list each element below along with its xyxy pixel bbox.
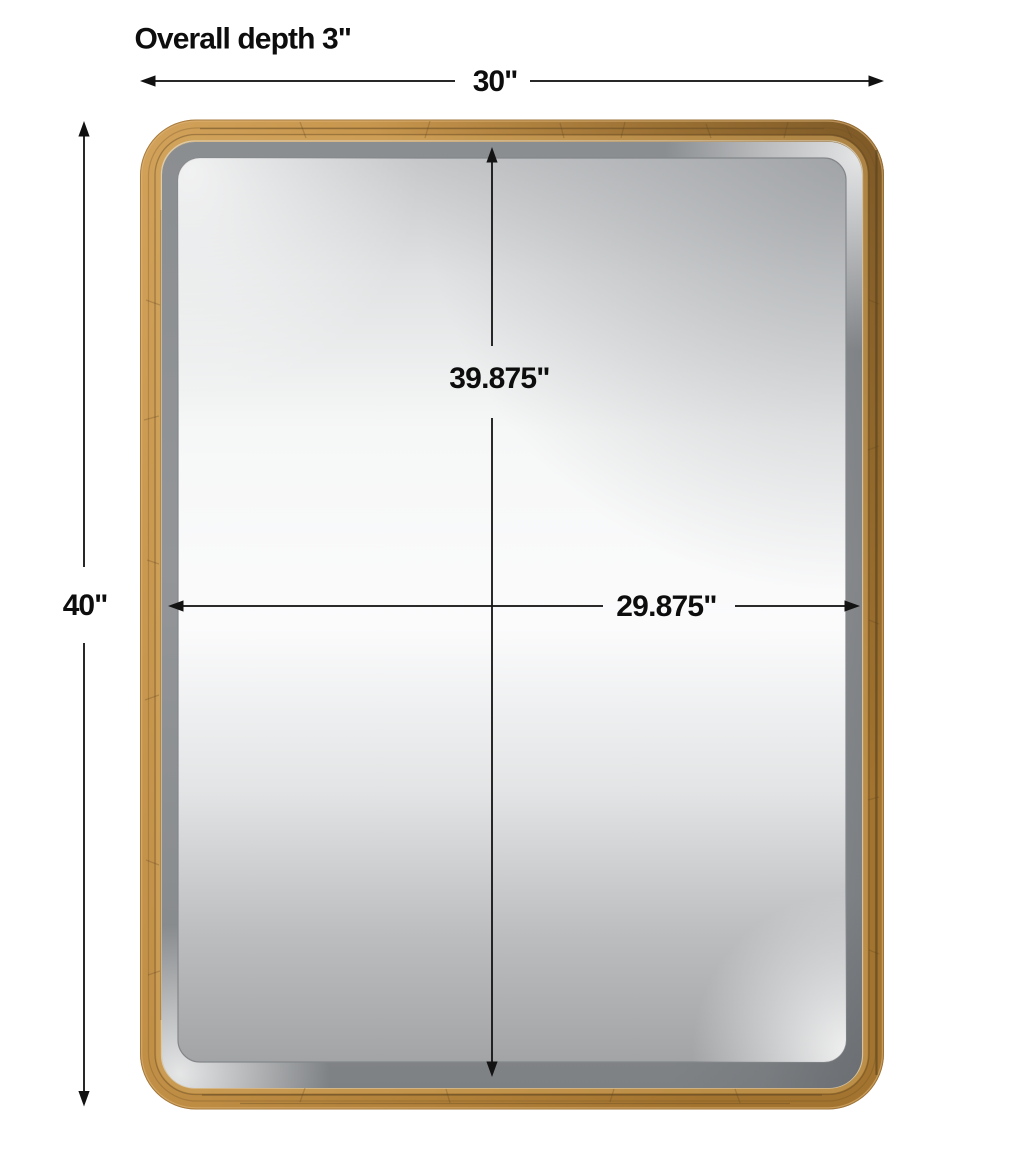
svg-text:30": 30" — [473, 65, 518, 98]
svg-text:29.875": 29.875" — [616, 590, 716, 623]
svg-text:39.875": 39.875" — [449, 362, 549, 395]
svg-text:40": 40" — [63, 589, 108, 622]
svg-text:Overall depth 3": Overall depth 3" — [135, 23, 352, 56]
